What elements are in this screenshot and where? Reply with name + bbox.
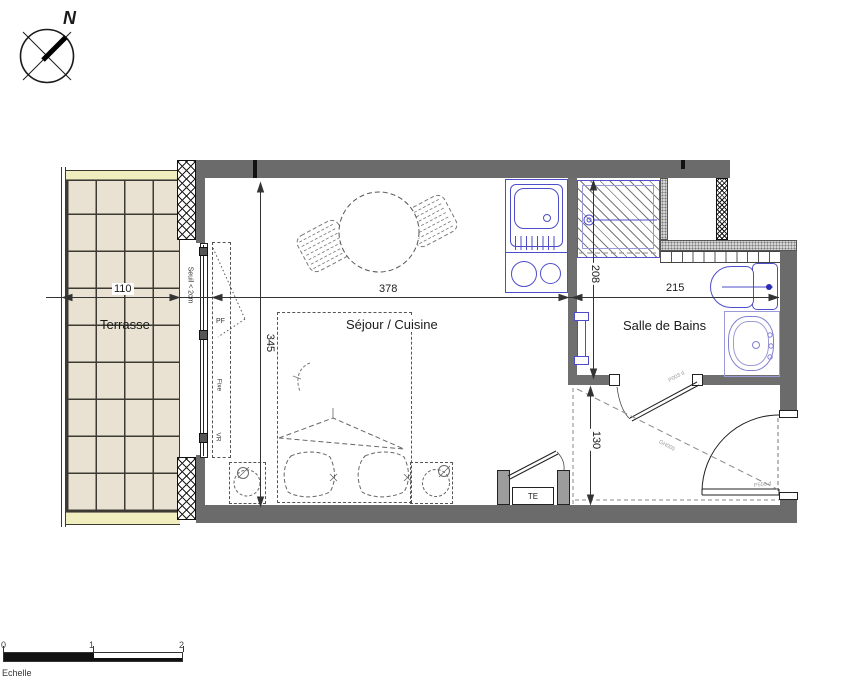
wall-joint bbox=[681, 160, 685, 169]
concrete-strip-vertical bbox=[660, 178, 668, 240]
terrace-label: Terrasse bbox=[98, 317, 152, 332]
bed-footprint bbox=[277, 312, 412, 503]
scale-tick-0: 0 bbox=[1, 640, 6, 650]
entry-door-code: P500 d bbox=[754, 481, 772, 489]
closet-door-leaf bbox=[508, 451, 564, 479]
window-shutter-label: VR bbox=[215, 432, 222, 441]
dining-table-icon bbox=[339, 192, 419, 272]
side-table-right bbox=[410, 462, 453, 504]
bathroom-label: Salle de Bains bbox=[621, 318, 708, 333]
cooktop-burner-small bbox=[540, 263, 561, 284]
scale-bar-solid bbox=[4, 653, 94, 661]
window-mullion bbox=[199, 433, 208, 443]
insulation-strip-duct bbox=[716, 178, 728, 240]
wall-top bbox=[196, 160, 730, 178]
door-jamb bbox=[779, 410, 798, 418]
window-fixed-label: Fixe bbox=[216, 379, 223, 391]
electrical-panel-label: TE bbox=[528, 492, 538, 501]
insulation-column-top bbox=[177, 160, 196, 240]
scale-tick-2: 2 bbox=[179, 640, 184, 650]
bath-door-wall-left bbox=[568, 375, 610, 385]
bathroom-door-leaf bbox=[617, 382, 699, 421]
window-glazing-line bbox=[203, 245, 204, 456]
closet-post bbox=[557, 470, 570, 505]
window-mullion bbox=[199, 247, 208, 256]
dim-terrace-width: 110 bbox=[112, 283, 134, 295]
wall-joint bbox=[253, 160, 257, 178]
radiator-cap bbox=[574, 356, 589, 365]
dim-living-width: 378 bbox=[377, 283, 399, 295]
living-label: Séjour / Cuisine bbox=[344, 317, 440, 332]
electrical-panel: TE bbox=[512, 487, 554, 505]
door-post bbox=[609, 374, 620, 386]
toilet-tank bbox=[752, 263, 778, 310]
tiled-ledge bbox=[660, 251, 780, 263]
bathroom-door-code: P003 d bbox=[668, 370, 686, 383]
terrace-tiles bbox=[66, 180, 180, 512]
window-pf-label: PF bbox=[216, 318, 225, 325]
terrace-sill-bottom bbox=[66, 512, 180, 525]
scale-tick-1: 1 bbox=[89, 640, 94, 650]
scale-bar-stripe bbox=[94, 658, 182, 661]
dim-entry-height: 130 bbox=[590, 429, 602, 451]
wall-right-upper bbox=[780, 240, 797, 410]
scale-bar bbox=[3, 652, 183, 662]
door-jamb bbox=[779, 492, 798, 500]
threshold-label: Seuil < 2cm bbox=[187, 267, 194, 304]
wall-right-lower bbox=[780, 500, 797, 523]
shower-tray-inner bbox=[582, 185, 654, 249]
kitchen-sink-basin bbox=[514, 188, 559, 229]
north-label: N bbox=[63, 8, 76, 29]
concrete-band bbox=[660, 240, 797, 251]
scale-label: Echelle bbox=[2, 668, 32, 678]
sink-drainer bbox=[515, 236, 559, 250]
toilet-bowl bbox=[710, 266, 754, 308]
closet-post bbox=[497, 470, 510, 505]
wall-bottom bbox=[196, 505, 797, 523]
window-glazing bbox=[200, 243, 208, 458]
radiator-bar bbox=[577, 320, 586, 358]
chair-icon bbox=[294, 193, 459, 275]
dim-bathroom-height: 208 bbox=[589, 263, 601, 285]
partition-kitchen-bath bbox=[568, 178, 577, 377]
side-table-left bbox=[229, 462, 266, 504]
insulation-column-bottom bbox=[177, 457, 196, 520]
terrace-sill-top bbox=[66, 170, 180, 180]
dim-living-height: 345 bbox=[264, 332, 276, 354]
washbasin-inner bbox=[733, 321, 769, 366]
cooktop-burner-large bbox=[511, 261, 537, 287]
compass-rose-icon bbox=[21, 30, 74, 83]
entry-note-code: GH005 bbox=[658, 439, 676, 452]
window-swing-zone bbox=[212, 242, 231, 458]
window-mullion bbox=[199, 330, 208, 340]
floor-plan: TE bbox=[0, 0, 849, 688]
door-post bbox=[692, 374, 703, 386]
sink-drain bbox=[543, 214, 551, 222]
dim-bathroom-width: 215 bbox=[664, 282, 686, 294]
wall-left-stub-bottom bbox=[196, 455, 205, 505]
wall-left-stub-top bbox=[196, 178, 205, 243]
